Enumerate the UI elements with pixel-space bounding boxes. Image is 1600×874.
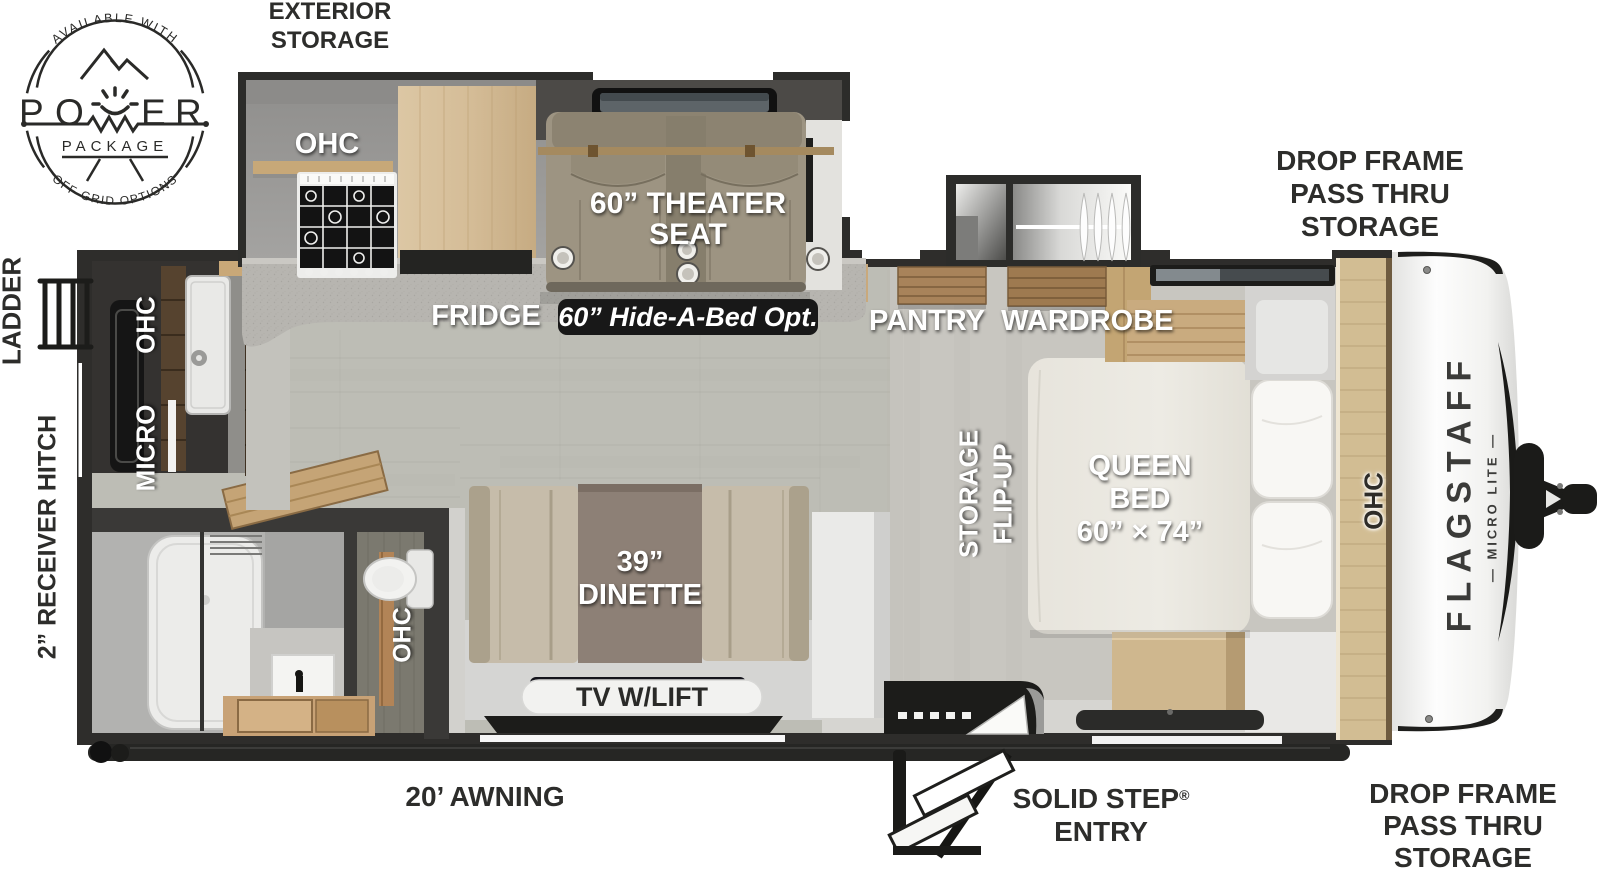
svg-text:R: R: [175, 92, 202, 133]
svg-text:P: P: [19, 92, 44, 133]
svg-text:OFF-GRID OPTIONS: OFF-GRID OPTIONS: [50, 172, 181, 208]
svg-text:PACKAGE: PACKAGE: [62, 138, 168, 155]
svg-text:E: E: [141, 92, 166, 133]
svg-text:AVAILABLE WITH: AVAILABLE WITH: [49, 11, 181, 47]
svg-text:O: O: [55, 92, 84, 133]
